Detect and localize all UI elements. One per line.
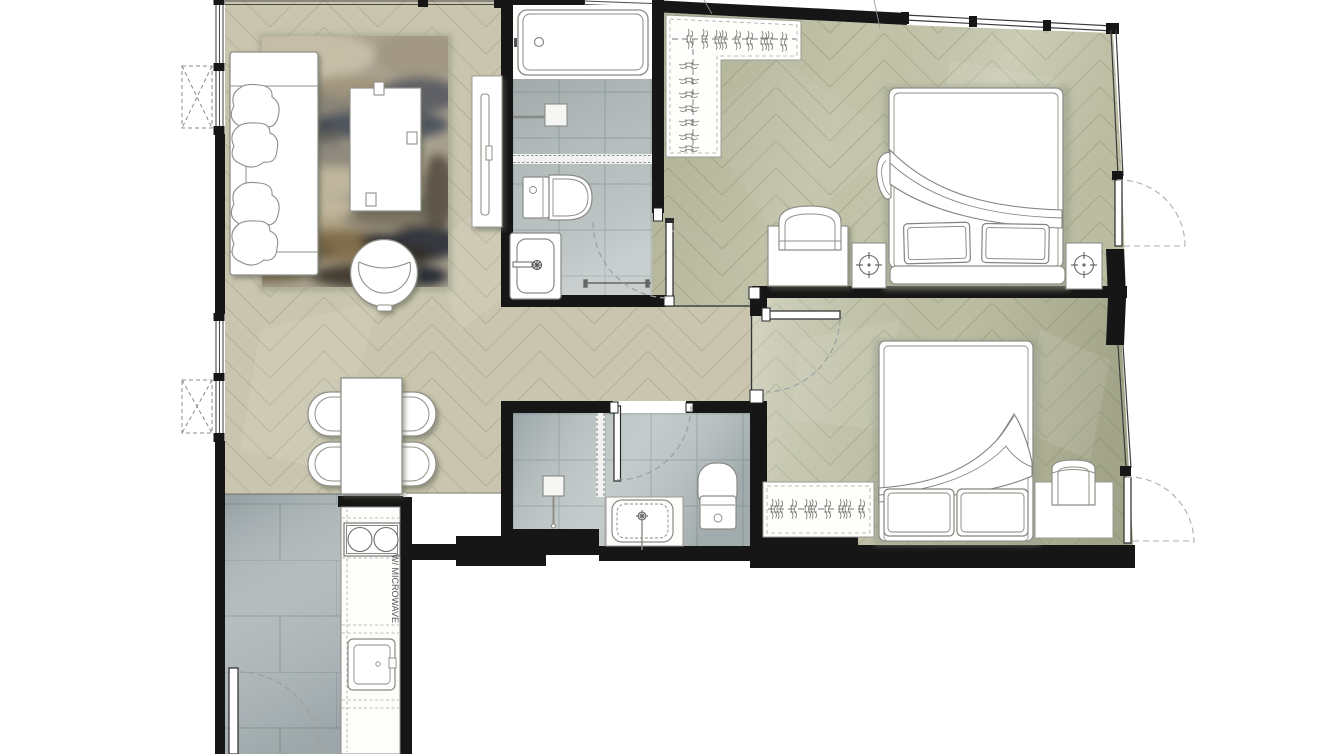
svg-text:W/ MICROWAVE: W/ MICROWAVE [390,554,400,623]
